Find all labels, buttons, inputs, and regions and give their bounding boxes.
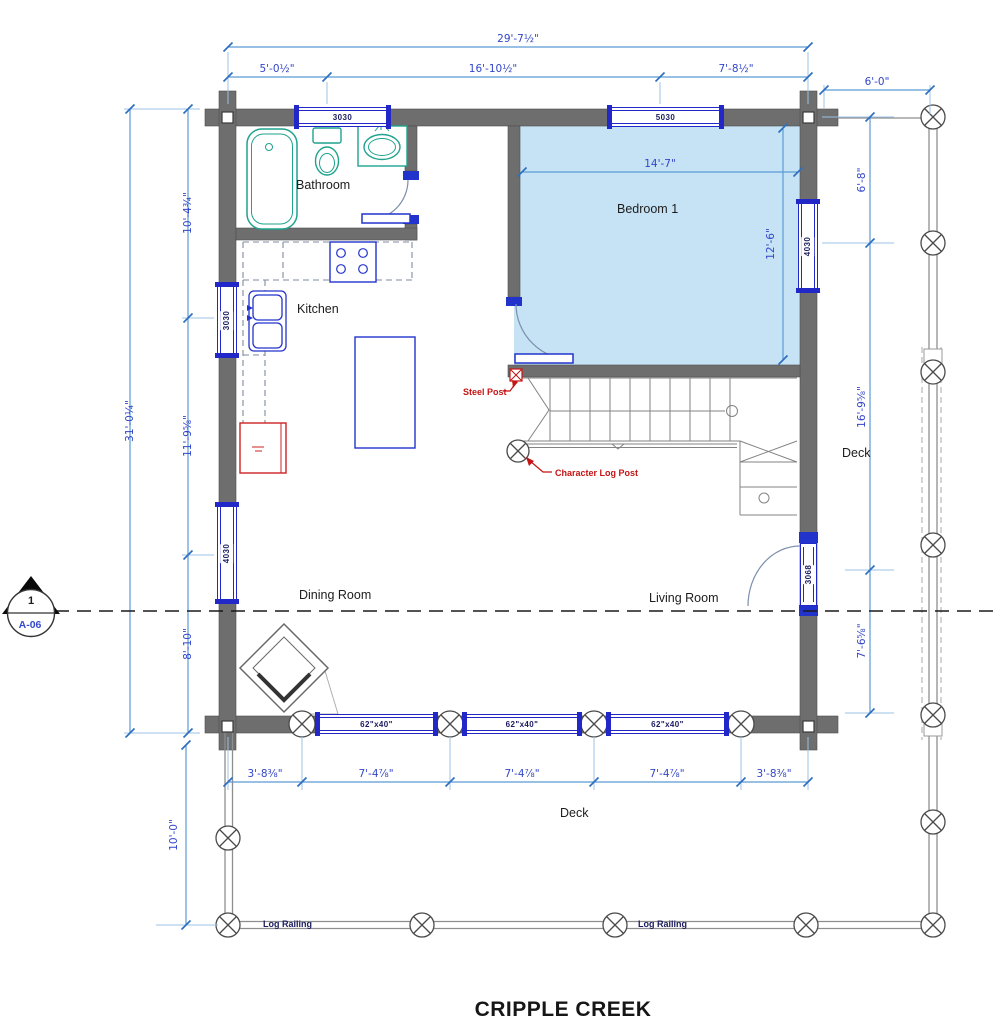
window-cap (577, 712, 582, 736)
window-cap (607, 105, 612, 129)
dim-bedroom-width: 14'-7" (644, 158, 676, 170)
staircase (522, 378, 797, 515)
dim-top-seg-2: 16'-10½" (469, 63, 517, 75)
section-sheet-number: A-06 (19, 619, 42, 631)
dim-right-seg-1: 6'-8" (856, 168, 868, 193)
corner-fireplace (240, 624, 338, 714)
window-cap (215, 502, 239, 507)
dim-top-overall: 29'-7½" (497, 33, 539, 45)
log-post-icon (794, 913, 818, 937)
window-deck-3: 62"x40" (607, 714, 728, 734)
room-label-kitchen: Kitchen (297, 302, 339, 316)
window-label: 62"x40" (504, 720, 541, 729)
dim-right-seg-2: 16'-9⅝" (856, 386, 868, 428)
annotation-steel-post: Steel Post (463, 387, 507, 397)
dim-bottom-seg-5: 3'-8⅜" (756, 768, 791, 780)
window-label: 4030 (221, 543, 234, 562)
annotation-character-log-post: Character Log Post (555, 468, 638, 478)
section-detail-number: 1 (28, 595, 34, 607)
window-cap (796, 288, 820, 293)
log-post-icon (728, 711, 754, 737)
window-label: 3030 (331, 113, 354, 122)
window-bedroom-right: 4030 (798, 200, 818, 292)
log-post-icon (216, 913, 240, 937)
log-post-icon (921, 533, 945, 557)
window-label: 62"x40" (649, 720, 686, 729)
log-post-icon (921, 913, 945, 937)
bathtub-icon (247, 129, 297, 229)
log-post-icon (921, 231, 945, 255)
window-cap (433, 712, 438, 736)
window-cap (215, 282, 239, 287)
window-cap (606, 712, 611, 736)
door-living-room: 3068 (800, 543, 817, 606)
window-top-right: 5030 (608, 107, 723, 127)
dim-bottom-seg-2: 7'-4⅞" (358, 768, 393, 780)
window-kitchen-left: 3030 (217, 283, 237, 357)
door-label: 3068 (802, 565, 815, 584)
window-cap (315, 712, 320, 736)
dim-bottom-seg-3: 7'-4⅞" (504, 768, 539, 780)
room-label-bedroom1: Bedroom 1 (617, 202, 678, 216)
floor-plan-drawing (0, 0, 1000, 1031)
window-cap (215, 599, 239, 604)
window-cap (724, 712, 729, 736)
window-dining-left: 4030 (217, 503, 237, 603)
character-log-post-leader (526, 457, 552, 472)
room-label-bathroom: Bathroom (296, 178, 350, 192)
character-log-post-icon (507, 440, 529, 462)
floor-plan: 3030 5030 4030 3030 4030 62"x40" 62"x40"… (0, 0, 1000, 1031)
dim-deck-width: 6'-0" (865, 76, 890, 88)
window-deck-1: 62"x40" (316, 714, 437, 734)
dim-right-seg-3: 7'-6⅝" (856, 623, 868, 658)
dim-bottom-seg-4: 7'-4⅞" (649, 768, 684, 780)
log-post-icon (410, 913, 434, 937)
log-post-icon (289, 711, 315, 737)
dim-left-overall: 31'-0¼" (124, 400, 136, 442)
window-cap (386, 105, 391, 129)
kitchen-sink-icon (247, 291, 286, 351)
toilet-icon (313, 128, 341, 175)
bedroom-door-leaf (515, 354, 573, 363)
annotation-log-railing-1: Log Railing (263, 919, 312, 929)
window-cap (719, 105, 724, 129)
bathroom-sink-icon (358, 125, 407, 166)
log-post-icon (216, 826, 240, 850)
room-label-living: Living Room (649, 591, 718, 605)
room-label-dining: Dining Room (299, 588, 371, 602)
log-post-icon (921, 105, 945, 129)
window-label: 3030 (221, 310, 234, 329)
window-label: 5030 (654, 113, 677, 122)
bathroom-door-leaf (362, 214, 410, 223)
dim-deck-depth: 10'-0" (168, 819, 180, 851)
room-label-deck-front: Deck (560, 806, 588, 820)
window-cap (215, 353, 239, 358)
log-post-icon (921, 360, 945, 384)
window-cap (796, 199, 820, 204)
window-deck-2: 62"x40" (463, 714, 581, 734)
dim-top-seg-1: 5'-0½" (259, 63, 294, 75)
log-post-icon (603, 913, 627, 937)
log-post-icon (581, 711, 607, 737)
drawing-title: CRIPPLE CREEK (475, 998, 652, 1022)
dim-bedroom-depth: 12'-6" (765, 228, 777, 260)
range-icon (330, 242, 376, 282)
log-post-icon (921, 810, 945, 834)
window-cap (462, 712, 467, 736)
dim-top-seg-3: 7'-8½" (718, 63, 753, 75)
room-label-deck-side: Deck (842, 446, 870, 460)
window-label: 4030 (802, 236, 815, 255)
dim-left-seg-1: 10'-4¾" (182, 192, 194, 234)
annotation-log-railing-2: Log Railing (638, 919, 687, 929)
dim-left-seg-2: 11'-9⅝" (182, 415, 194, 457)
log-post-icon (921, 703, 945, 727)
dim-left-seg-3: 8'-10" (182, 628, 194, 660)
window-label: 62"x40" (358, 720, 395, 729)
window-top-left: 3030 (295, 107, 390, 127)
dim-bottom-seg-1: 3'-8⅜" (247, 768, 282, 780)
log-post-icon (437, 711, 463, 737)
window-cap (294, 105, 299, 129)
kitchen-island (355, 337, 415, 448)
refrigerator-icon (240, 423, 286, 473)
